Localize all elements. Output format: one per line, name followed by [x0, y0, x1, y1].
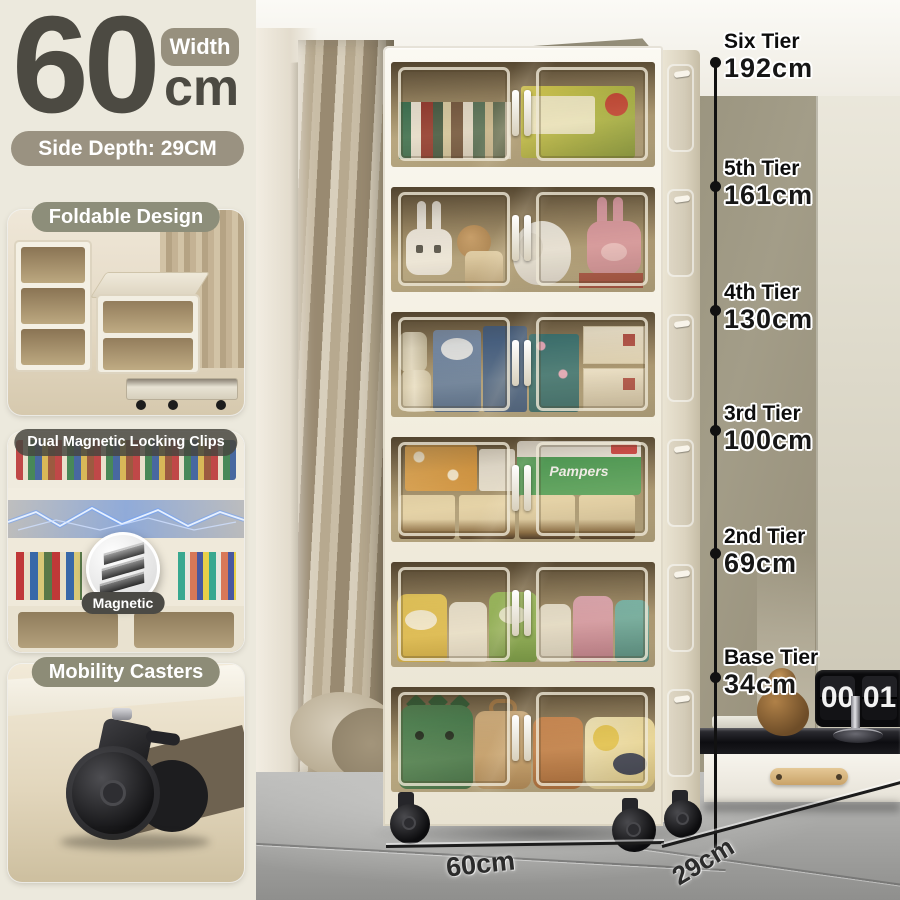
- clock-stand-base: [833, 728, 883, 743]
- door-handle: [524, 590, 531, 636]
- left-door: [398, 192, 510, 286]
- side-module-plate: [667, 689, 694, 777]
- tier-4-window: Pampers: [391, 437, 655, 542]
- measure-dot: [710, 672, 721, 683]
- door-handle: [524, 215, 531, 261]
- feature-card-casters: [8, 664, 244, 882]
- caster-photo-pin: [112, 708, 132, 720]
- side-module-plate: [667, 564, 694, 652]
- left-door: [398, 67, 510, 161]
- right-door: [536, 317, 648, 411]
- mini-window: [21, 329, 85, 365]
- mini-window: [21, 247, 85, 283]
- side-module-plate: [667, 64, 694, 152]
- drawer-handle-screw: [836, 774, 842, 780]
- tier-5-window: [391, 562, 655, 667]
- door-handle: [512, 340, 519, 386]
- measure-dot: [710, 305, 721, 316]
- right-door: [536, 692, 648, 786]
- side-latch: [674, 70, 691, 78]
- door-handle: [524, 465, 531, 511]
- tier-2-window: [391, 187, 655, 292]
- tier-name: Six Tier: [724, 30, 813, 54]
- tier-label-4: 4th Tier 130cm: [724, 281, 813, 334]
- width-value: 60: [12, 0, 156, 145]
- feature-card-foldable: [8, 210, 244, 415]
- door-handle: [524, 340, 531, 386]
- mini-wheel: [168, 400, 178, 410]
- tier-label-5: 5th Tier 161cm: [724, 157, 813, 210]
- tier-6-window: [391, 687, 655, 792]
- caster-hub: [626, 822, 641, 837]
- caster-hub: [402, 816, 416, 830]
- drawer-handle-screw: [776, 774, 782, 780]
- card-door-amber: [18, 612, 118, 648]
- clock-minutes: 01: [862, 676, 897, 720]
- side-module-plate: [667, 439, 694, 527]
- mini-wheel: [216, 400, 226, 410]
- tier-name: Base Tier: [724, 646, 818, 670]
- tier-1-window: [391, 62, 655, 167]
- mini-window: [103, 338, 193, 370]
- measure-dot: [710, 548, 721, 559]
- door-handle: [524, 715, 531, 761]
- caster-photo-hub: [100, 780, 126, 806]
- card-door-amber: [134, 612, 234, 648]
- feature-pill-casters: Mobility Casters: [32, 657, 220, 687]
- tier-height: 69cm: [724, 549, 805, 578]
- tier-name: 4th Tier: [724, 281, 813, 305]
- curtain: [298, 40, 394, 776]
- side-latch: [674, 445, 691, 453]
- mini-window: [21, 288, 85, 324]
- product-advert-image: 00 01: [0, 0, 900, 900]
- right-door: [536, 67, 648, 161]
- mini-cabinet-3tier: [14, 240, 92, 372]
- mini-cabinet-folded: [126, 378, 238, 400]
- card-white-band: [8, 488, 244, 500]
- door-handle: [512, 715, 519, 761]
- clock-hours: 00: [820, 676, 855, 720]
- feature-pill-foldable: Foldable Design: [32, 202, 220, 232]
- cabinet-side-panel: [663, 50, 700, 822]
- card-books-right: [178, 552, 236, 600]
- tier-height: 34cm: [724, 670, 818, 699]
- left-door: [398, 442, 510, 536]
- tier-label-base: Base Tier 34cm: [724, 646, 818, 699]
- caster-photo-brake: [145, 730, 180, 747]
- tier-label-3: 3rd Tier 100cm: [724, 402, 813, 455]
- mini-window: [103, 301, 193, 333]
- left-door: [398, 317, 510, 411]
- door-handle: [524, 90, 531, 136]
- tier-name: 5th Tier: [724, 157, 813, 181]
- tier-name: 2nd Tier: [724, 525, 805, 549]
- side-latch: [674, 695, 691, 703]
- right-door: [536, 192, 648, 286]
- tier-3-window: [391, 312, 655, 417]
- tier-label-2: 2nd Tier 69cm: [724, 525, 805, 578]
- right-door: [536, 567, 648, 661]
- feature-card-magnetic: Magnetic: [8, 432, 244, 652]
- mini-cabinet-2tier: [96, 294, 200, 374]
- tier-height: 192cm: [724, 54, 813, 83]
- measure-dot: [710, 425, 721, 436]
- left-door: [398, 567, 510, 661]
- tier-height: 100cm: [724, 426, 813, 455]
- door-handle: [512, 90, 519, 136]
- card-books-left: [16, 552, 82, 600]
- left-door: [398, 692, 510, 786]
- width-unit: cm: [164, 58, 239, 118]
- side-module-plate: [667, 314, 694, 402]
- side-latch: [674, 570, 691, 578]
- tier-height: 161cm: [724, 181, 813, 210]
- door-handle: [512, 590, 519, 636]
- side-latch: [674, 320, 691, 328]
- tier-height: 130cm: [724, 305, 813, 334]
- caster-hub: [676, 812, 689, 825]
- height-measure-line: [714, 60, 717, 848]
- door-handle: [512, 465, 519, 511]
- magnetic-inset-pill: Magnetic: [82, 592, 165, 614]
- tier-name: 3rd Tier: [724, 402, 813, 426]
- right-door: [536, 442, 648, 536]
- measure-dot: [710, 57, 721, 68]
- side-latch: [674, 195, 691, 203]
- side-module-plate: [667, 189, 694, 277]
- side-depth-pill: Side Depth: 29CM: [11, 131, 244, 166]
- measure-dot: [710, 181, 721, 192]
- caster-photo-shadow: [60, 834, 210, 850]
- feature-pill-magnetic: Dual Magnetic Locking Clips: [14, 429, 237, 456]
- storage-cabinet: Pampers: [383, 46, 700, 826]
- info-panel: 60 Width cm Side Depth: 29CM Foldable De…: [0, 0, 256, 900]
- mini-wheel: [136, 400, 146, 410]
- tier-label-6: Six Tier 192cm: [724, 30, 813, 83]
- door-handle: [512, 215, 519, 261]
